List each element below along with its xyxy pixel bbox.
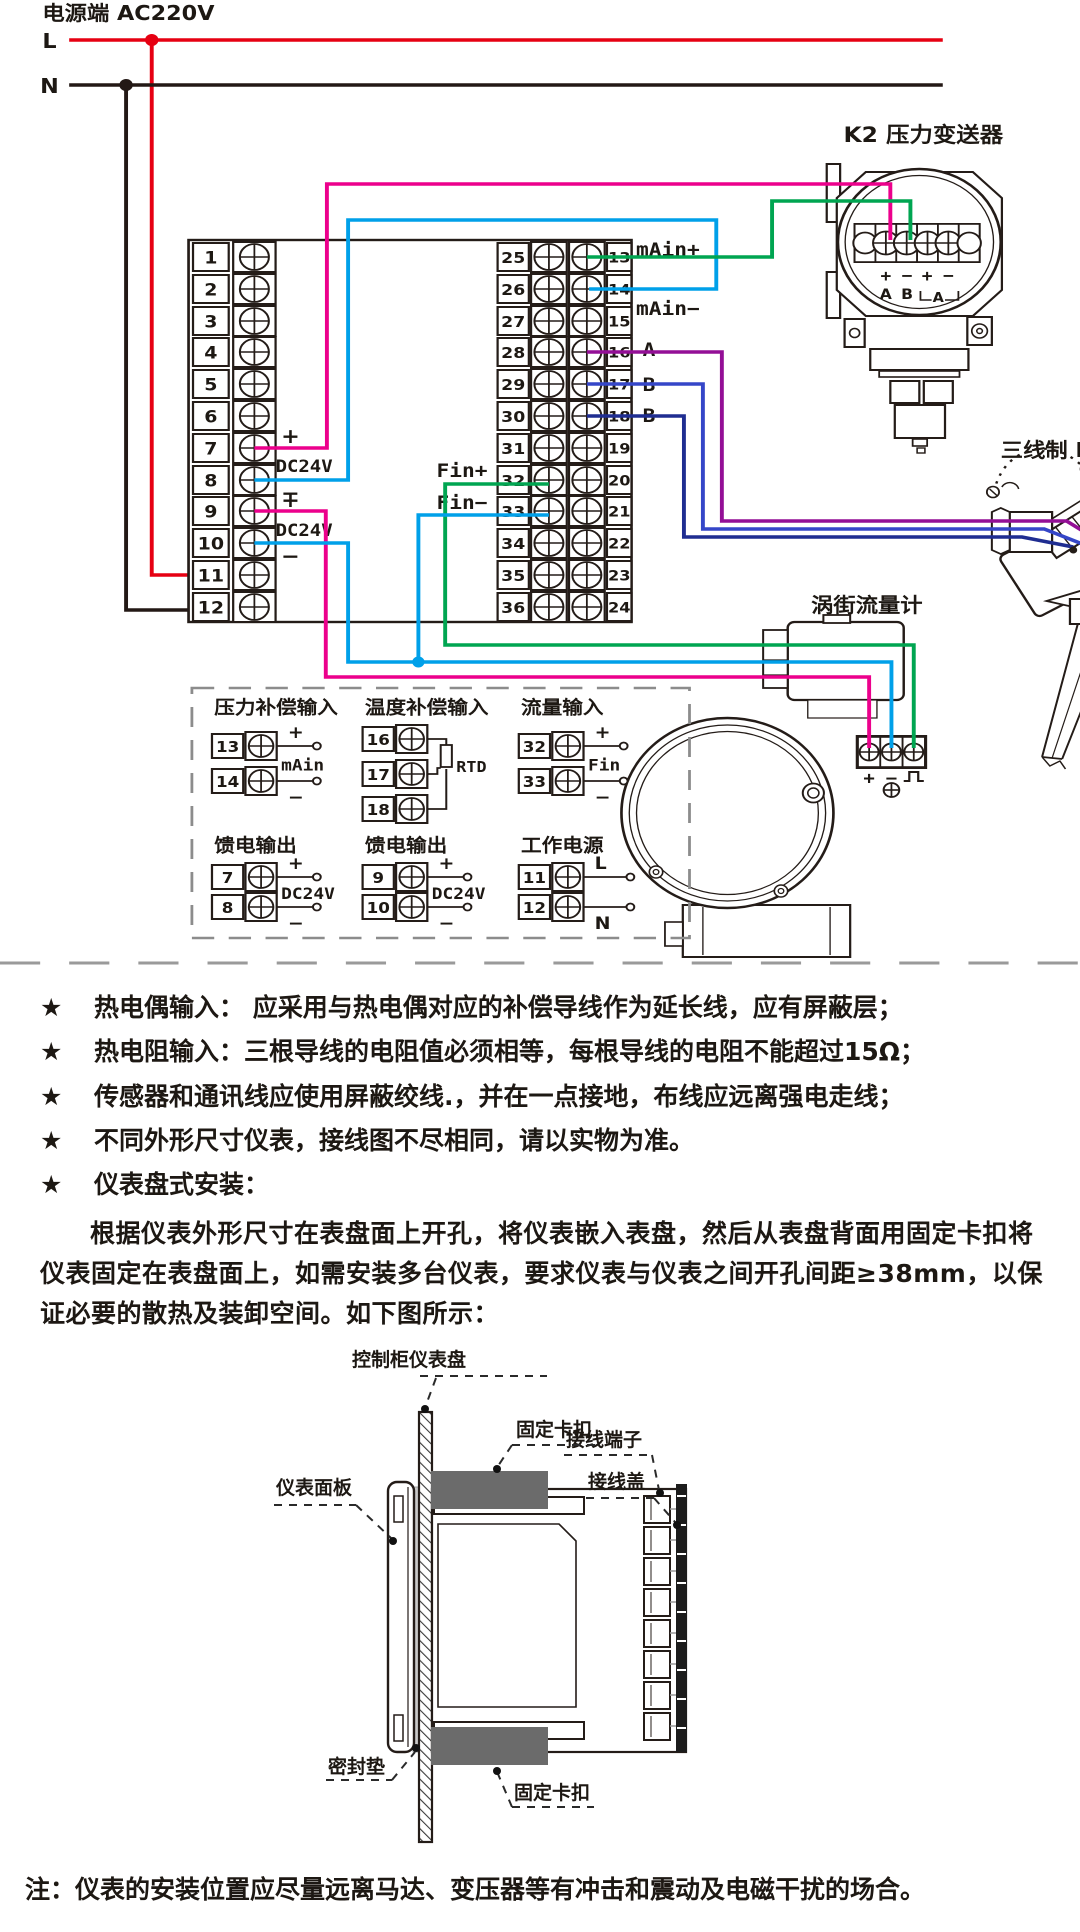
polarity-tag: −: [438, 914, 454, 934]
terminal-comb-cell: [644, 1527, 670, 1554]
terminal-number: 10: [367, 899, 390, 917]
note-bullet: ★传感器和通讯线应使用屏蔽绞线.，并在一点接地，布线应远离强电走线；: [40, 1081, 1050, 1112]
star-icon: ★: [40, 1169, 70, 1200]
cover-label: 接线盖: [588, 1470, 645, 1493]
polarity-tag: +: [288, 723, 304, 743]
terminal-number: 33: [523, 773, 546, 791]
detail-group-title: 馈电输出: [214, 835, 296, 857]
terminal-number: 32: [523, 738, 546, 756]
terminal-number: 24: [608, 599, 631, 616]
wire-end-terminal-icon: [313, 874, 321, 881]
star-icon: ★: [40, 1081, 70, 1112]
wire-end-terminal-icon: [313, 904, 321, 911]
wire-end-terminal-icon: [313, 778, 321, 785]
terminal-number: 8: [204, 471, 217, 491]
terminal-comb-cell: [644, 1682, 670, 1709]
feed1-plus: +: [281, 424, 300, 448]
terminal-number: 22: [608, 535, 631, 552]
pressure-transmitter: K2 压力变送器 + − + − A B A: [827, 122, 1004, 453]
line-n-label: N: [40, 74, 59, 98]
pt100-sensor: 三线制 PT100: [987, 438, 1080, 769]
note-text: 仪表盘式安装：: [94, 1169, 269, 1200]
pulse-symbol-icon: [904, 772, 924, 781]
tx-ammeter-mark: A: [933, 291, 945, 306]
terminal-number: 19: [608, 440, 631, 457]
tx-letter-a: A: [880, 287, 893, 303]
detail-mid-label: DC24V: [281, 884, 335, 903]
detail-group-title: 压力补偿输入: [214, 697, 338, 719]
rtd-a-label: A: [643, 338, 656, 361]
polarity-tag: −: [288, 914, 304, 934]
terminal-number: 33: [501, 503, 525, 521]
panel-label: 控制柜仪表盘: [352, 1348, 466, 1371]
star-icon: ★: [40, 1036, 70, 1067]
junction-dot: [119, 79, 132, 91]
clip-bottom-label: 固定卡扣: [514, 1781, 590, 1804]
terminal-number: 9: [204, 502, 217, 522]
fm-sign-plus: +: [863, 769, 875, 789]
terminal-number: 30: [501, 408, 525, 426]
terminal-number: 36: [501, 599, 525, 617]
pt100-title: 三线制 PT100: [1001, 438, 1080, 462]
terminal-number: 10: [198, 534, 224, 554]
tx-sign-3: +: [922, 266, 933, 285]
detail-group-title: 工作电源: [521, 835, 604, 857]
tx-sign-4: −: [943, 266, 954, 285]
star-icon: ★: [40, 992, 70, 1023]
terminal-number: 32: [501, 472, 525, 490]
polarity-tag: L: [595, 854, 607, 874]
terminal-number: 12: [198, 598, 224, 618]
main-minus-label: mAin−: [636, 297, 700, 320]
terminal-number: 11: [523, 869, 546, 887]
note-bullet: ★热电阻输入：三根导线的电阻值必须相等，每根导线的电阻不能超过15Ω；: [40, 1036, 1050, 1067]
note-text: 热电偶输入： 应采用与热电偶对应的补偿导线作为延长线，应有屏蔽层；: [94, 992, 903, 1023]
install-figure-svg: 控制柜仪表盘 固定卡扣 仪表面板 接线端子 接线盖 密封垫 固定卡扣: [0, 1334, 1080, 1854]
detail-box: 压力补偿输入1314+−mAin温度补偿输入161718RTD流量输入3233+…: [212, 697, 634, 934]
terminal-number: 3: [204, 312, 217, 332]
feed2-minus: −: [281, 544, 300, 568]
vortex-flowmeter: 涡街流量计 + −: [621, 593, 926, 957]
terminal-number: 14: [216, 773, 239, 791]
junction-dot: [412, 657, 424, 668]
wire-end-terminal-icon: [464, 874, 472, 881]
detail-group-title: 馈电输出: [365, 835, 447, 857]
mount-hole-icon: [957, 233, 980, 254]
terminal-number: 15: [608, 313, 631, 330]
terminal-number: 28: [501, 344, 525, 362]
terminal-number: 18: [367, 801, 390, 819]
polarity-tag: +: [595, 723, 611, 743]
terminal-comb-cell: [644, 1651, 670, 1678]
wire-end-terminal-icon: [626, 904, 634, 911]
terminal-number: 2: [204, 280, 217, 300]
gasket-label: 密封垫: [328, 1755, 385, 1778]
terminal-number: 16: [367, 731, 390, 749]
detail-group-title: 流量输入: [521, 697, 604, 719]
cabinet-panel: [419, 1412, 432, 1842]
terminal-number: 11: [198, 566, 224, 586]
install-paragraph: 根据仪表外形尺寸在表盘面上开孔，将仪表嵌入表盘，然后从表盘背面用固定卡扣将仪表固…: [40, 1214, 1048, 1334]
meter-inner-body: [438, 1524, 576, 1707]
terminal-number: 26: [501, 281, 525, 299]
terminal-number: 34: [501, 535, 525, 553]
terminal-number: 12: [523, 899, 546, 917]
wiring-diagram-svg: 电源端 AC220V L N 123456789101112 251326142…: [0, 0, 1080, 968]
terminal-comb-cell: [644, 1620, 670, 1647]
footer-note: 注：仪表的安装位置应尽量远离马达、变压器等有冲击和震动及电磁干扰的场合。: [0, 1854, 1080, 1906]
wire-end-terminal-icon: [464, 904, 472, 911]
terminal-number: 5: [204, 375, 217, 395]
line-l-label: L: [42, 29, 56, 53]
note-bullet: ★不同外形尺寸仪表，接线图不尽相同，请以实物为准。: [40, 1125, 1050, 1156]
terminal-number: 23: [608, 567, 631, 584]
terminal-number: 4: [204, 343, 217, 363]
detail-mid-label: Fin: [588, 755, 620, 774]
polarity-tag: −: [595, 788, 611, 808]
terminal-number: 9: [372, 869, 384, 887]
transmitter-title: K2 压力变送器: [843, 122, 1003, 147]
detail-mid-label: mAin: [281, 755, 324, 774]
terminal-number: 17: [367, 766, 390, 784]
fin-plus-label: Fin+: [437, 459, 488, 482]
polarity-tag: +: [288, 854, 304, 874]
tx-letter-b: B: [901, 287, 913, 303]
note-text: 热电阻输入：三根导线的电阻值必须相等，每根导线的电阻不能超过15Ω；: [94, 1036, 925, 1067]
terminal-number: 35: [501, 567, 525, 585]
feed2-plus: +: [281, 488, 300, 512]
polarity-tag: N: [595, 914, 611, 934]
terminal-number: 6: [204, 407, 217, 427]
flowmeter-title: 涡街流量计: [811, 593, 922, 617]
terminal-number: 27: [501, 313, 525, 331]
detail-mid-label: DC24V: [432, 884, 486, 903]
terminal-comb-cell: [644, 1558, 670, 1585]
wire-end-terminal-icon: [620, 743, 628, 750]
note-bullet: ★热电偶输入： 应采用与热电偶对应的补偿导线作为延长线，应有屏蔽层；: [40, 992, 1050, 1023]
bezel-label: 仪表面板: [275, 1476, 353, 1499]
notes-section: ★热电偶输入： 应采用与热电偶对应的补偿导线作为延长线，应有屏蔽层； ★热电阻输…: [0, 968, 1080, 1334]
terminal-number: 21: [608, 503, 631, 520]
note-text: 传感器和通讯线应使用屏蔽绞线.，并在一点接地，布线应远离强电走线；: [94, 1081, 904, 1112]
terminal-number: 13: [216, 738, 239, 756]
polarity-tag: +: [438, 854, 454, 874]
wire-end-terminal-icon: [620, 778, 628, 785]
terminal-block-label: 接线端子: [566, 1428, 642, 1451]
wire-end-terminal-icon: [626, 874, 634, 881]
star-icon: ★: [40, 1125, 70, 1156]
terminal-comb-cell: [644, 1589, 670, 1616]
detail-group-title: 温度补偿输入: [365, 697, 489, 719]
terminal-number: 29: [501, 376, 525, 394]
terminal-number: 7: [222, 869, 234, 887]
polarity-tag: −: [288, 788, 304, 808]
note-text: 不同外形尺寸仪表，接线图不尽相同，请以实物为准。: [94, 1125, 694, 1156]
fixing-clip-top: [431, 1471, 548, 1509]
feed1-label: DC24V: [276, 457, 333, 477]
junction-dot: [145, 34, 158, 46]
terminal-number: 20: [608, 472, 631, 489]
terminal-number: 8: [222, 899, 234, 917]
tx-sign-1: +: [880, 266, 891, 285]
terminal-block-assembly: 123456789101112 251326142715281629173018…: [189, 240, 632, 622]
terminal-number: 25: [501, 249, 525, 267]
transmitter-terminal-strip: [853, 224, 981, 262]
fixing-clip-bottom: [431, 1727, 548, 1765]
pt100-terminal-dot: [1069, 547, 1077, 554]
terminal-comb-cell: [644, 1713, 670, 1740]
terminal-number: 31: [501, 440, 525, 458]
fm-sign-minus: −: [886, 769, 898, 789]
terminal-number: 7: [204, 439, 217, 459]
power-title: 电源端 AC220V: [42, 1, 215, 25]
note-bullet: ★仪表盘式安装：: [40, 1169, 1050, 1200]
tx-sign-2: −: [902, 266, 913, 285]
wire-end-terminal-icon: [313, 743, 321, 750]
rtd-label: RTD: [456, 758, 486, 776]
terminal-number: 1: [204, 248, 217, 268]
rtd-resistor-icon: [441, 745, 452, 767]
